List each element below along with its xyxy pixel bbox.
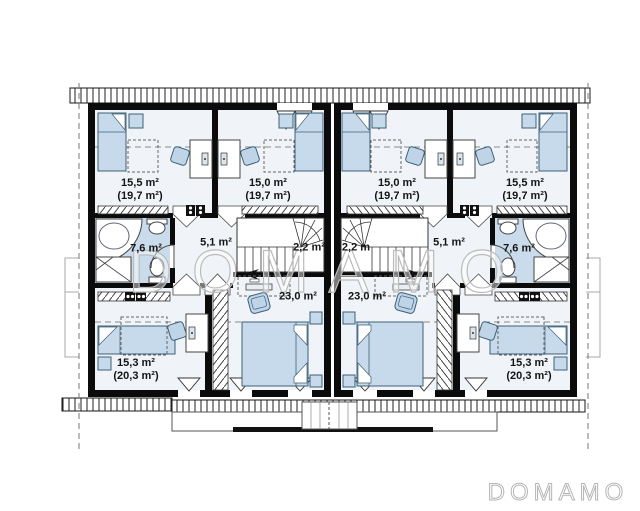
area-value: 7,6 m² [130, 243, 162, 256]
area-gross-value: (20,3 m²) [506, 370, 551, 383]
area-value: 7,6 m² [503, 243, 535, 256]
floor-plan-drawing: DOMAMO DOMAMO [0, 0, 640, 511]
area-gross-value: (19,7 m²) [374, 190, 419, 203]
roof-eave-band-top [70, 88, 590, 103]
area-value: 15,0 m² [245, 177, 290, 190]
area-value: 15,3 m² [506, 357, 551, 370]
area-value: 23,0 m² [348, 291, 386, 304]
room-label-bathroom-left: 7,6 m² [130, 243, 162, 256]
room-label-bedroom-top-mid-right: 15,0 m² (19,7 m²) [374, 177, 419, 203]
area-gross-value: (19,7 m²) [502, 190, 547, 203]
roof-eave-band-bottom [172, 400, 585, 412]
room-label-hallway-right: 5,1 m² [433, 237, 465, 250]
room-label-hallway-left: 5,1 m² [200, 237, 232, 250]
logo-text: DOMAMO [488, 479, 629, 506]
area-value: 15,5 m² [117, 177, 162, 190]
area-value: 15,5 m² [502, 177, 547, 190]
area-gross-value: (19,7 m²) [117, 190, 162, 203]
area-value: 2,2 m [342, 242, 370, 255]
balcony-divider [302, 402, 357, 429]
watermark-text: DOMAMO [129, 238, 526, 305]
area-gross-value: (20,3 m²) [113, 370, 158, 383]
area-gross-value: (19,7 m²) [245, 190, 290, 203]
room-label-bedroom-bottom-left: 15,3 m² (20,3 m²) [113, 357, 158, 383]
area-value: 23,0 m² [279, 291, 317, 304]
room-label-bedroom-center-right: 23,0 m² [348, 291, 386, 304]
floor-plan-canvas: DOMAMO DOMAMO 15,5 m² (19,7 m²) 15,0 m² … [0, 0, 640, 511]
room-label-bedroom-bottom-right: 15,3 m² (20,3 m²) [506, 357, 551, 383]
room-label-bedroom-top-mid-left: 15,0 m² (19,7 m²) [245, 177, 290, 203]
room-label-bedroom-top-far-left: 15,5 m² (19,7 m²) [117, 177, 162, 203]
area-value: 5,1 m² [433, 237, 465, 250]
area-value: 2,2 m² [293, 242, 325, 255]
room-label-bathroom-right: 7,6 m² [503, 243, 535, 256]
room-label-stair-room-right: 2,2 m [342, 242, 370, 255]
area-value: 5,1 m² [200, 237, 232, 250]
side-roof-outline-left [65, 258, 79, 357]
room-label-stair-room-left: 2,2 m² [293, 242, 325, 255]
area-value: 15,3 m² [113, 357, 158, 370]
room-label-bedroom-center-left: 23,0 m² [279, 291, 317, 304]
area-value: 15,0 m² [374, 177, 419, 190]
room-label-bedroom-top-far-right: 15,5 m² (19,7 m²) [502, 177, 547, 203]
